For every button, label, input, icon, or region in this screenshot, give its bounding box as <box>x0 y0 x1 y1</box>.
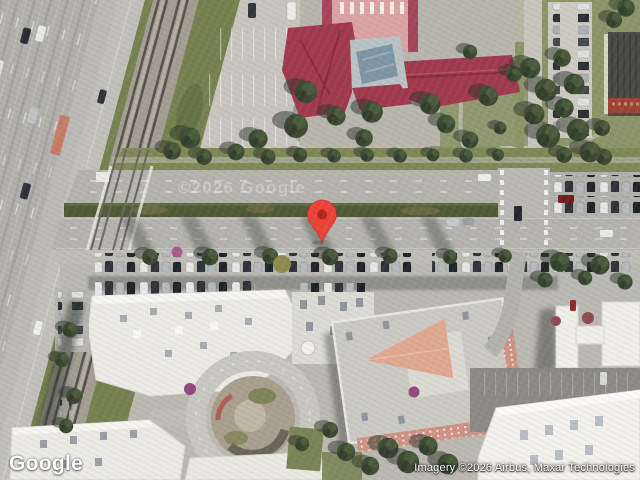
office-building-ne <box>604 32 640 116</box>
crimson-tree <box>551 316 561 326</box>
church-complex <box>282 0 528 158</box>
crape-myrtle-tree <box>184 383 196 395</box>
autumn-tree <box>273 255 291 273</box>
google-logo[interactable]: Google <box>9 452 83 476</box>
crimson-tree <box>582 312 594 324</box>
crape-myrtle-tree <box>172 247 183 258</box>
parking-rows-east <box>550 172 640 216</box>
map-pin[interactable] <box>305 197 339 245</box>
pin-dot <box>317 210 327 220</box>
pin-body <box>308 200 337 243</box>
crape-myrtle-tree <box>409 387 420 398</box>
map-canvas[interactable]: ©2026 Google Google Imagery ©2026 Airbus… <box>0 0 640 480</box>
map-watermark: ©2026 Google <box>178 179 306 197</box>
map-attribution: Imagery ©2026 Airbus, Maxar Technologies <box>414 462 635 474</box>
rail-shelter <box>96 172 109 182</box>
